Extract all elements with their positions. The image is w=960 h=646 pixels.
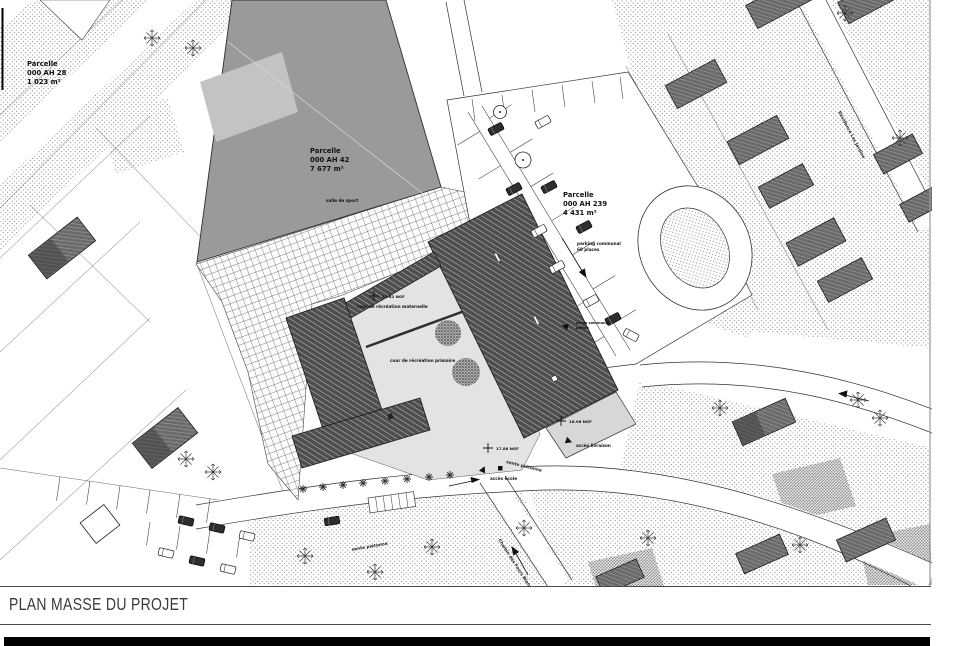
parcel-ah28-area: 1 023 m²	[27, 78, 61, 86]
gate-marker	[498, 466, 503, 471]
lamp-dot-icon	[499, 111, 501, 113]
site-plan-drawing: Parcelle 000 AH 28 1 023 m² Parcelle 000…	[0, 0, 932, 586]
plan-sheet: Parcelle 000 AH 28 1 023 m² Parcelle 000…	[0, 0, 960, 646]
level-label-3: 16.98 NGF	[569, 419, 592, 424]
delivery-access-label: accès livraison	[576, 443, 611, 448]
parcel-ah28-name: Parcelle	[27, 60, 58, 68]
parcel-ah42-name: Parcelle	[310, 147, 341, 155]
parking-label-line1: parking communal	[577, 241, 621, 246]
plan-title: PLAN MASSE DU PROJET	[9, 594, 747, 615]
communal-access-label-line1: accès communal	[576, 321, 609, 325]
courtyard-primaire-label: cour de récréation primaire	[390, 358, 455, 363]
parcel-ah239-area: 4 431 m²	[563, 209, 597, 217]
bottom-black-bar	[4, 637, 930, 646]
parcel-ah42-code: 000 AH 42	[310, 156, 350, 164]
courtyard-maternelle-label: cour de récréation maternelle	[357, 304, 428, 309]
parcel-ah239-code: 000 AH 239	[563, 200, 607, 208]
lamp-dot-icon	[522, 159, 524, 161]
parcel-ah42-area: 7 677 m²	[310, 165, 344, 173]
parking-label-line2: 60 places	[577, 247, 600, 252]
courtyard-tree-icon	[452, 358, 480, 386]
level-label-1: 21.42 NGF	[382, 294, 405, 299]
parcel-ah239-name: Parcelle	[563, 191, 594, 199]
parcel-ah28-code: 000 AH 28	[27, 69, 67, 77]
gym-label: salle de sport	[326, 198, 358, 203]
level-label-2: 17.88 NGF	[496, 446, 519, 451]
title-band: PLAN MASSE DU PROJET	[0, 586, 931, 625]
courtyard-tree-icon	[435, 320, 461, 346]
school-access-label: accès école	[490, 476, 517, 481]
communal-access-label-line2: piéton	[576, 326, 589, 330]
